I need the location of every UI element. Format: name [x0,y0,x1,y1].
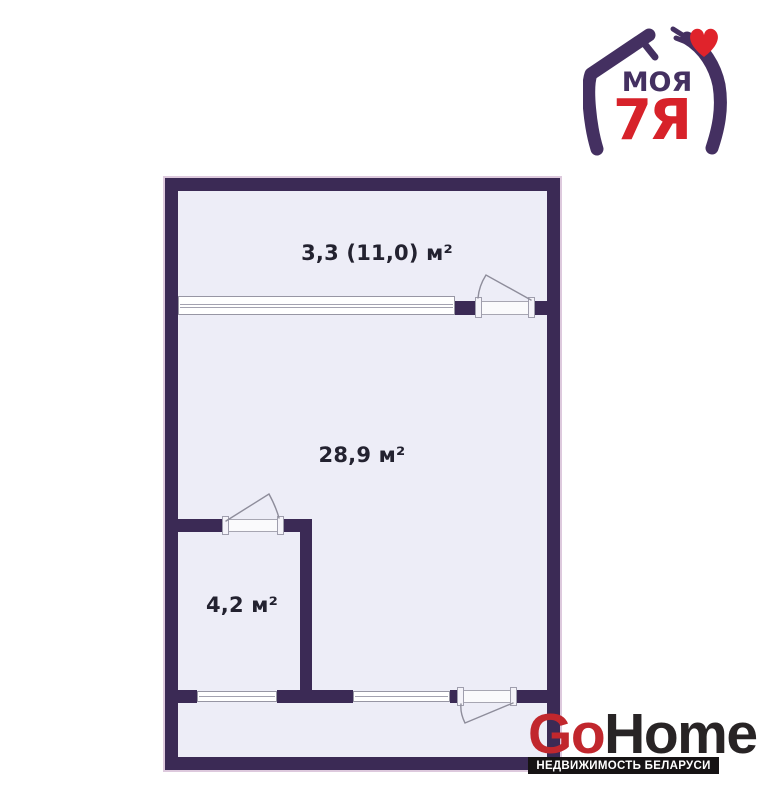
heart-icon [690,29,718,57]
wall-segment [455,301,477,315]
door-jamb [277,516,284,535]
door-jamb [222,516,229,535]
gohome-tagline: НЕДВИЖИМОСТЬ БЕЛАРУСИ [536,760,710,772]
moya7ya-logo: МОЯ 7Я [583,22,758,158]
logo-finger-icon [673,29,684,36]
wall-segment [277,690,353,703]
door-opening [480,301,530,315]
door-jamb [457,687,464,706]
wall-segment [535,301,547,315]
window-symbol [178,296,455,315]
screenshot-canvas: 3,3 (11,0) м² 28,9 м² 4,2 м² МОЯ 7Я GoHo… [0,0,762,800]
logo-thumb [643,42,655,57]
wall-segment [178,519,222,532]
door-opening [227,519,279,532]
floor-area [178,191,547,757]
moya-7ya-word: 7Я [613,88,689,153]
room-label-balcony: 3,3 (11,0) м² [277,241,477,265]
wall-segment [178,690,197,703]
door-jamb [475,297,482,318]
door-jamb [510,687,517,706]
window-symbol [197,691,277,702]
gohome-logo: GoHome [528,711,757,757]
wall-segment [450,690,457,703]
window-symbol [353,691,450,702]
gohome-tagline-bar: НЕДВИЖИМОСТЬ БЕЛАРУСИ [528,757,719,774]
room-label-living-room: 28,9 м² [282,443,442,467]
door-opening [462,690,512,703]
floorplan [165,178,560,770]
door-jamb [528,297,535,318]
room-label-bathroom: 4,2 м² [162,593,322,617]
